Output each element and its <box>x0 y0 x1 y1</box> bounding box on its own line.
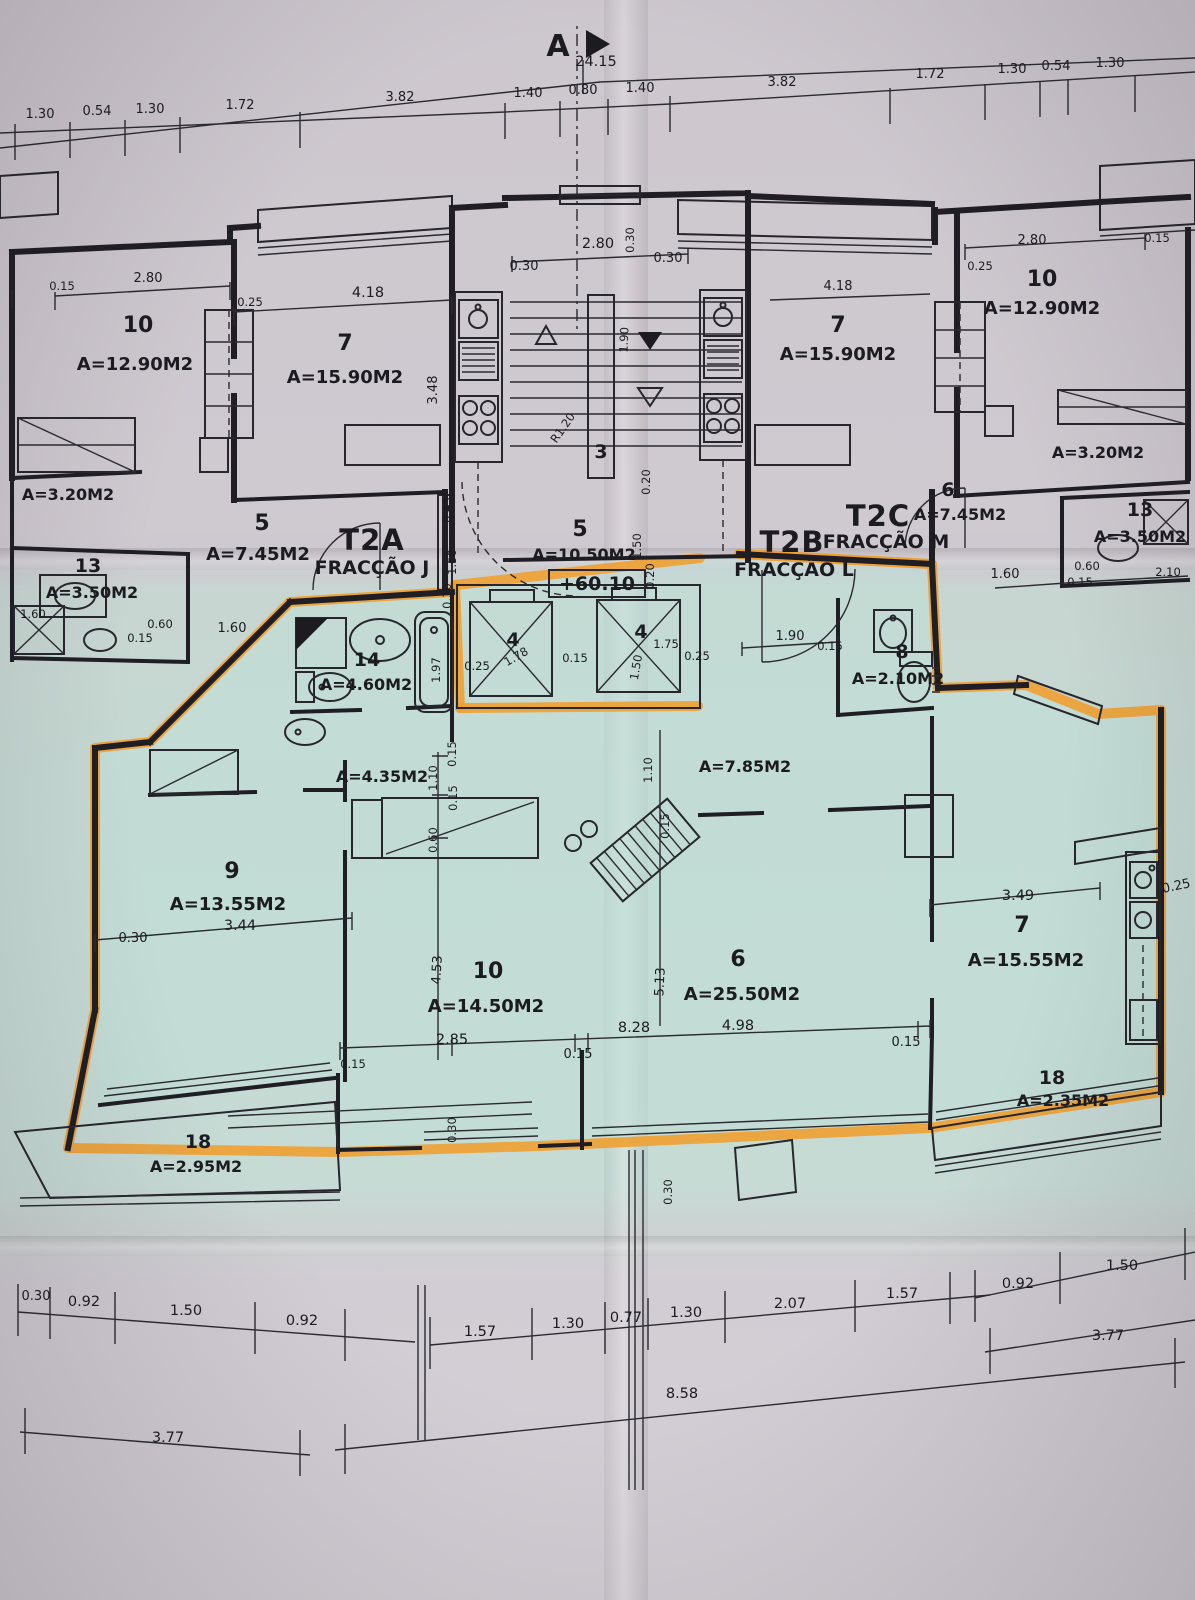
floor-plan-photo: A 24.15 1.30 0.54 1.30 1.72 3.82 1.40 0.… <box>0 0 1195 1600</box>
photo-vignette <box>0 0 1195 1600</box>
